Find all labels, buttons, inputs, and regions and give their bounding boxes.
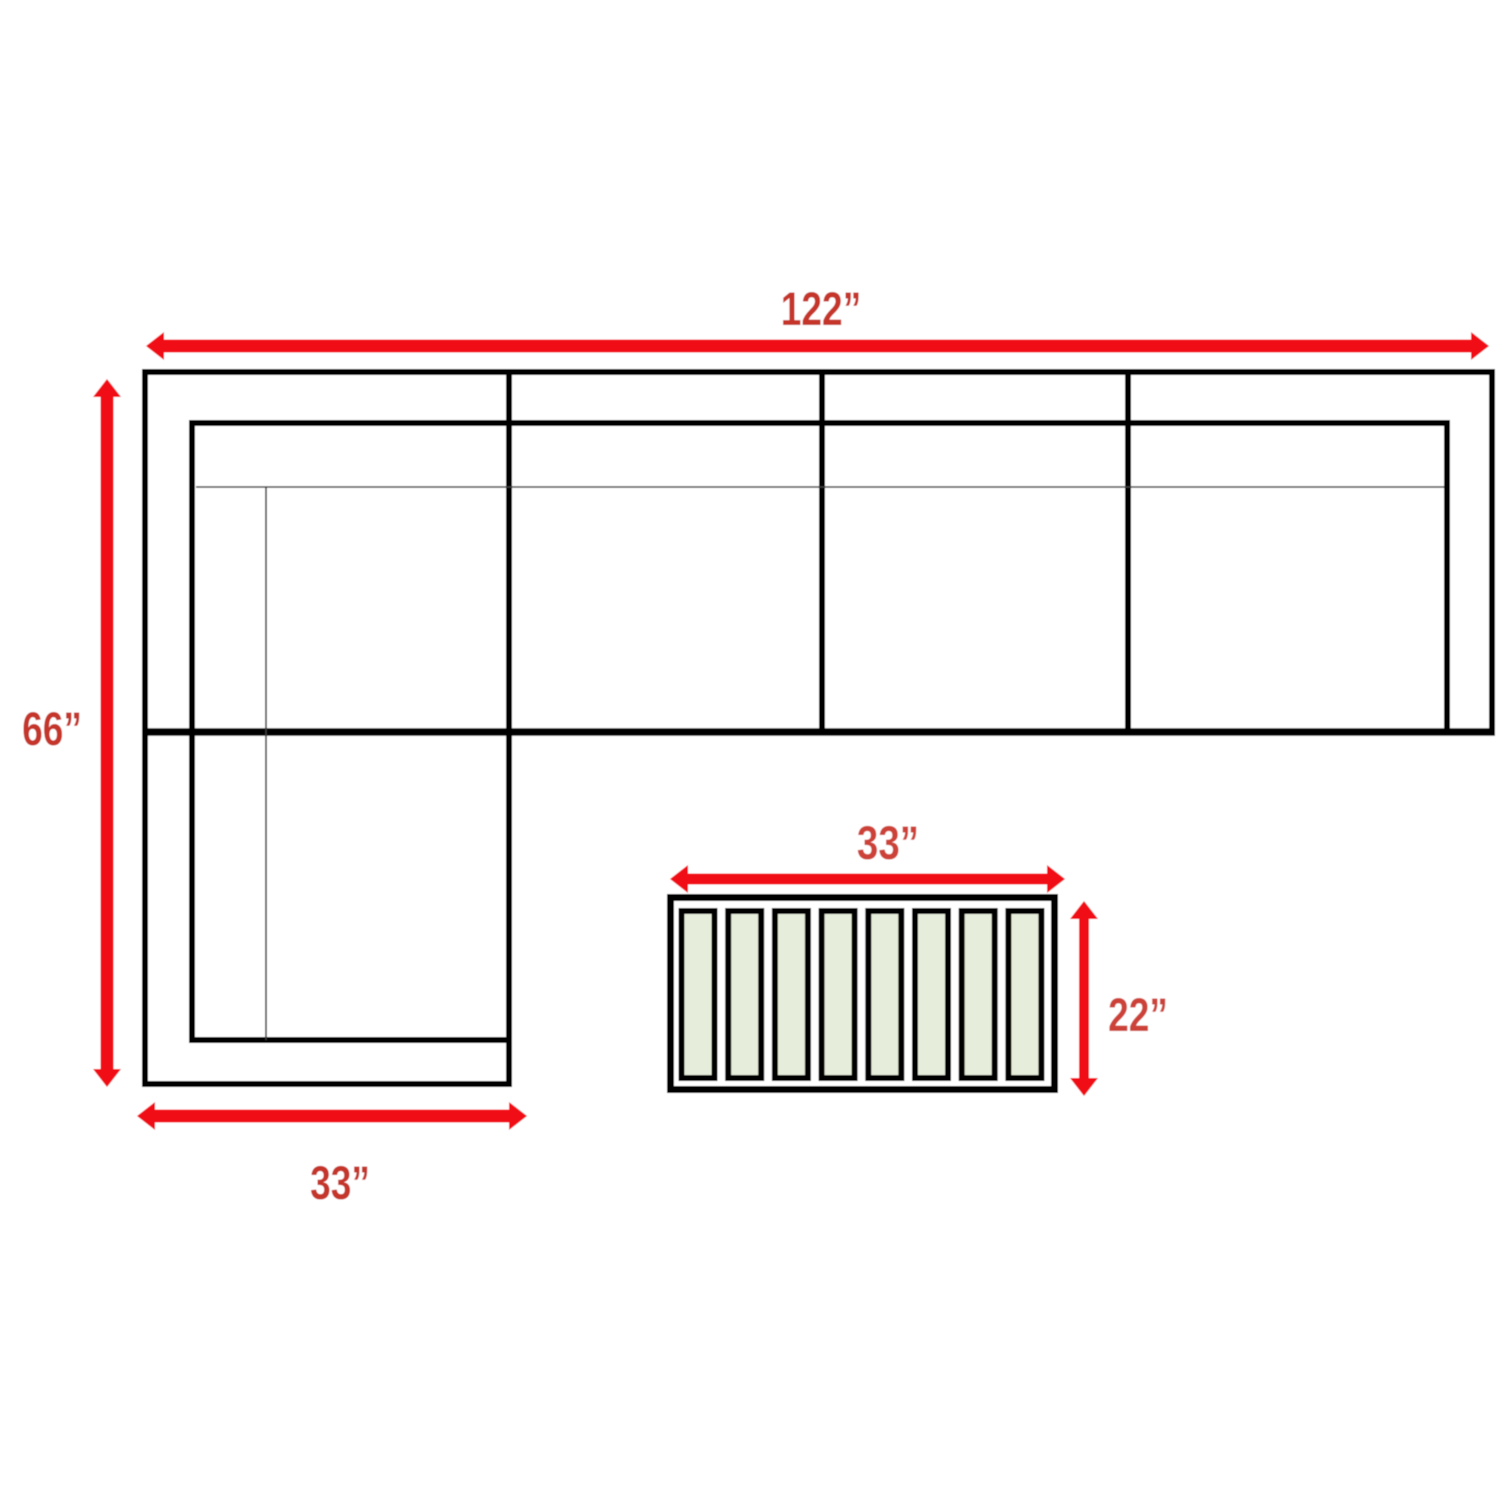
svg-text:33”: 33”: [310, 1157, 370, 1209]
svg-text:22”: 22”: [1108, 989, 1168, 1041]
svg-text:33”: 33”: [857, 817, 919, 869]
svg-text:66”: 66”: [22, 703, 82, 755]
svg-text:122”: 122”: [781, 283, 862, 335]
